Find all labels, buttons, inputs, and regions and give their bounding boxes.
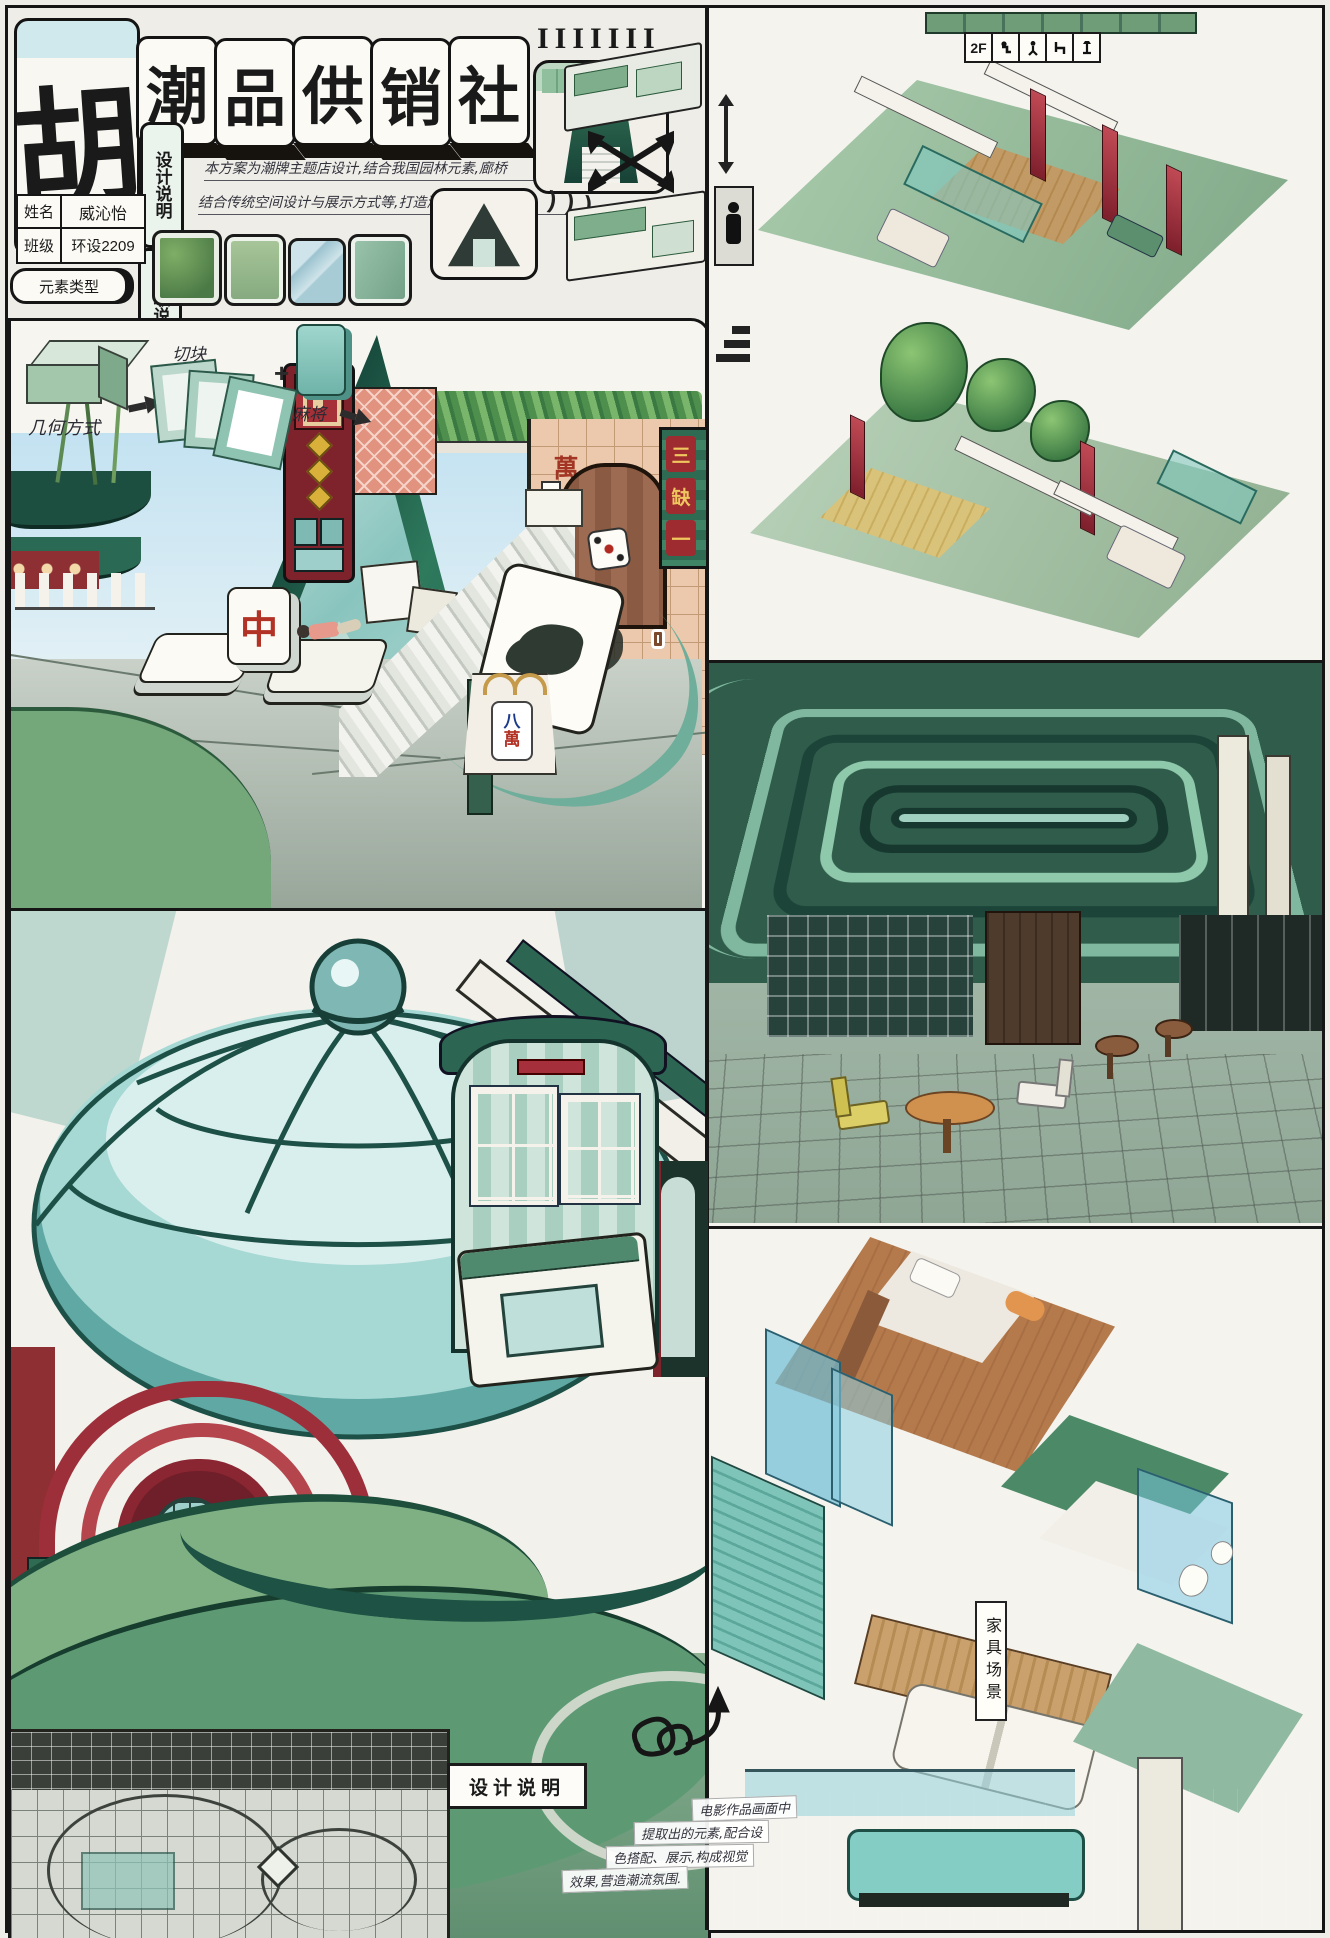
axon-plan-2 [730,348,1322,660]
arrow-right-icon [338,403,374,430]
mahjong-tile-zhong: 中 [227,587,291,665]
title-tile-4: 销 [370,38,452,148]
element-type-pill: 元素类型 [10,268,128,304]
process-strip: 切块 + 麻将 几何方式 [10,312,440,462]
element-sample-tile-glass [288,238,346,306]
screen-tile [294,548,344,572]
class-value: 环设2209 [62,229,144,262]
kiosk-red-trim [517,1059,585,1075]
title-tile-3: 供 [292,36,374,146]
stair-landing [525,489,583,527]
glass-grid-wall [767,915,973,1037]
person-seated-icon [991,32,1020,63]
crossed-arrows-icon [588,130,674,194]
gold-diamond [306,484,333,511]
design-note-box-label: 设计说明 [469,1773,565,1800]
axon1-red-wall [1166,164,1182,256]
gold-diamond [306,458,333,485]
axon1-red-wall [1030,88,1046,182]
mahjong-tile-shape [296,324,346,396]
design-note-line-2: 提取出的元素,配合设 [634,1820,770,1845]
design-note-box: 设计说明 [447,1763,587,1809]
plus-glyph: + [274,358,289,389]
exploded-slab-upper [564,42,702,132]
title-tile-5: 社 [448,36,530,146]
tree-blob [966,358,1036,432]
screen-tile [320,518,344,546]
sign-tile: 一 [666,520,696,556]
coffered-ceiling-room [709,663,1322,1223]
bag-tile-motif: 八 萬 [491,701,533,761]
exploded-axon-diagram [562,50,704,274]
info-table: 姓名 威沁怡 班级 环设2209 [16,194,146,264]
axon-plan-1 [730,44,1322,350]
design-note-line-1: 电影作品画面中 [692,1795,798,1822]
title-char: 销 [380,48,442,138]
console-desk [456,1231,659,1388]
exploded-slab-lower [566,190,706,282]
person-walking-icon [1018,32,1047,63]
floor-label: 2F [970,40,986,56]
title-tile-2: 品 [214,38,296,148]
title-char: 社 [458,46,520,136]
floor-plan-sketch [11,1729,450,1938]
axon2-red-wall [850,414,865,499]
side-doorway [653,1161,708,1377]
floor-label-cell: 2F [964,32,993,63]
class-label: 班级 [18,229,62,262]
element-sample-tile-pattern [224,234,286,306]
design-presentation-board: 胡 潮 品 供 销 社 IIIIIII 设计说明 提取说明 本方案为潮牌主题店设… [0,0,1330,1938]
axon1-red-wall [1102,124,1118,226]
teal-bench [847,1829,1085,1901]
dome-interior-panel: 设计说明 [8,908,711,1938]
spiral-doodle-icon [622,1684,738,1770]
stool [1095,1035,1139,1057]
stool [1155,1019,1193,1039]
white-column [1137,1757,1183,1930]
stone-posts [15,573,155,610]
kiosk-window [471,1087,557,1205]
design-note-line-4: 效果,营造潮流氛围. [562,1866,689,1893]
sign-tile: 缺 [666,478,696,514]
cuboid-shape [26,340,126,404]
screen-tile [294,518,318,546]
bag-handle [513,673,547,695]
lamp-icon [1072,32,1101,63]
shopping-bag: 八 萬 [463,673,557,775]
sign-tile: 三 [666,436,696,472]
console-screen [500,1284,604,1358]
title-char: 品 [224,48,286,138]
mahjong-label: 麻将 [292,400,326,425]
axon2-red-wall [1080,440,1095,535]
zhong-character: 中 [240,599,278,654]
element-type-label: 元素类型 [39,276,99,297]
furniture-sign-label: 家具场景 [979,1617,1003,1705]
design-note-vertical-label: 设计说明 [150,151,175,219]
title-char: 供 [302,46,364,136]
wood-door-wall [985,911,1081,1045]
element-sample-tile-green [348,234,412,306]
name-value: 威沁怡 [62,196,144,229]
name-label: 姓名 [18,196,62,229]
furniture-sign: 家具场景 [975,1601,1007,1721]
bag-handle [483,673,517,695]
tiled-floor [709,1054,1322,1223]
glass-partition [831,1367,893,1527]
green-floor-patch [1073,1643,1303,1813]
furniture-scene-axon: 家具场景 [709,1229,1322,1930]
element-sample-tile-plant [152,230,222,306]
ink-bird [512,616,587,682]
intro-line-1: 本方案为潮牌主题店设计,结合我国园林元素,廊桥 [204,158,572,181]
floor-legend-strip: 2F [966,32,1101,63]
shelf-band [925,12,1197,34]
kiosk-window [561,1095,639,1203]
sketch-box-aframe-view [430,188,538,280]
chair-icon [1045,32,1074,63]
dark-window-wall [1179,915,1322,1031]
geometry-method-label: 几何方式 [28,414,100,440]
lounging-person [297,617,361,643]
missing-one-sign: 三 缺 一 [659,427,709,569]
